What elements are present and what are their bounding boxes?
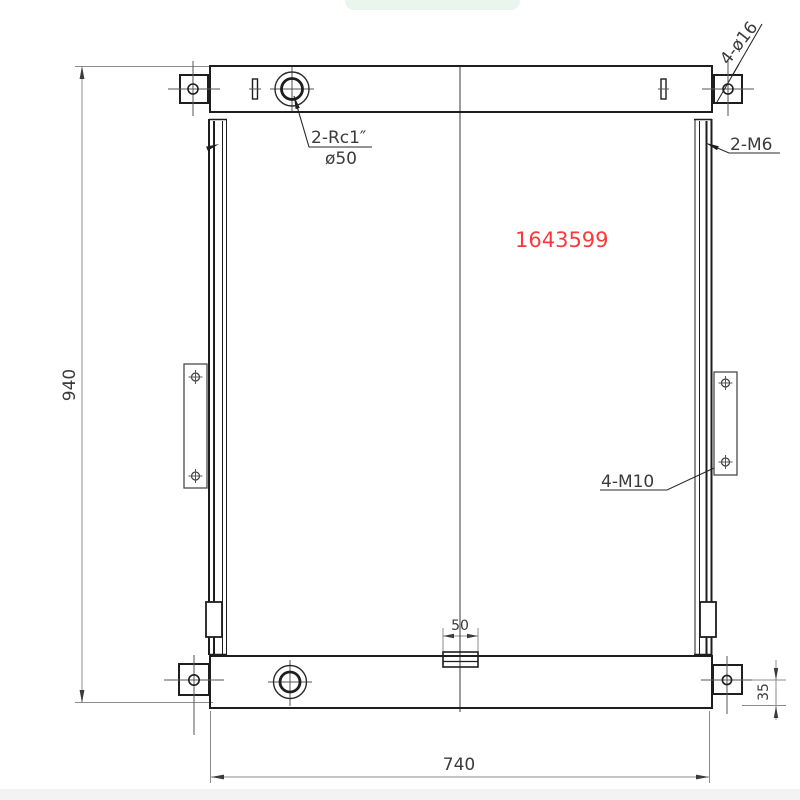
top-port — [270, 67, 314, 111]
top-tank-slot-left — [249, 79, 261, 99]
label-side-channel-thread: 2-M6 — [730, 135, 772, 155]
leader-arrows — [206, 90, 729, 469]
dim-drain: 50 — [451, 618, 469, 634]
label-side-plate-thread: 4-M10 — [601, 472, 654, 492]
bottom-port — [268, 660, 312, 706]
left-side-channel — [209, 119, 227, 655]
right-side-channel — [694, 119, 712, 655]
part-number: 1643599 — [515, 228, 609, 252]
technical-drawing: 940 740 50 35 2-Rc1″ ø50 2-M6 4-M10 4-ø1… — [0, 0, 800, 800]
bracket-top-left — [168, 61, 220, 116]
drawing-canvas: 940 740 50 35 2-Rc1″ ø50 2-M6 4-M10 4-ø1… — [0, 0, 800, 800]
top-tank-slot-right — [658, 79, 669, 99]
right-channel-tab — [700, 602, 716, 637]
bracket-top-right — [702, 61, 754, 116]
label-top-port-thread: 2-Rc1″ — [311, 128, 366, 148]
left-mounting-plate — [184, 364, 207, 488]
bracket-bottom-left — [164, 655, 224, 735]
dim-width: 740 — [443, 755, 475, 775]
label-top-port-diameter: ø50 — [325, 149, 357, 169]
dim-foot-offset: 35 — [756, 683, 772, 701]
right-mounting-plate — [714, 372, 737, 475]
left-channel-tab — [206, 602, 222, 637]
page-background-strip — [0, 789, 800, 800]
label-corner-bracket-holes: 4-ø16 — [716, 18, 762, 69]
dim-height: 940 — [60, 369, 80, 401]
